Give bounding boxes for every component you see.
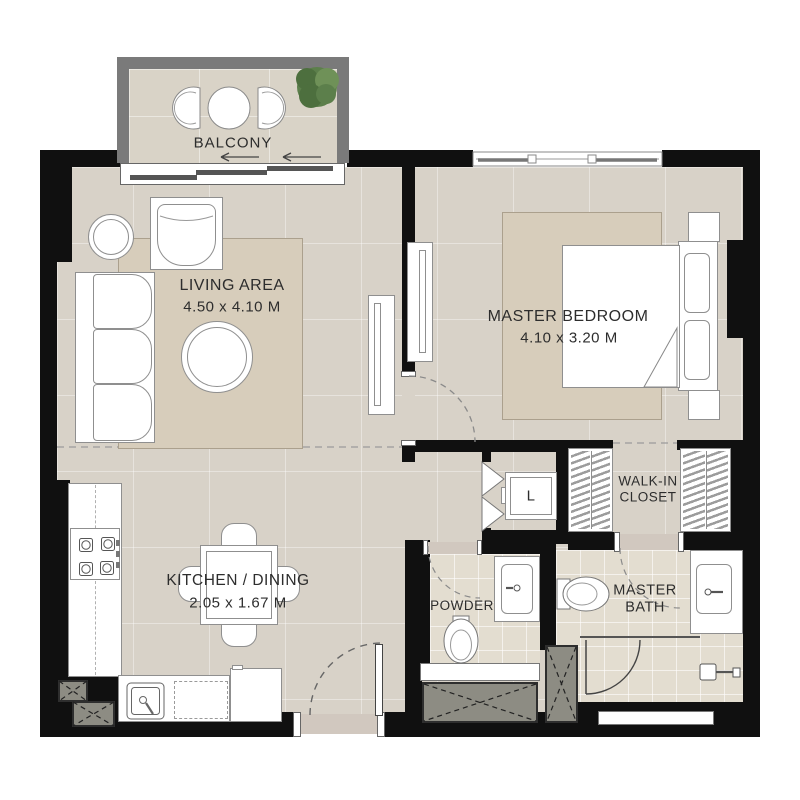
plant [296, 67, 339, 108]
bedroom-label: MASTER BEDROOM [488, 308, 649, 326]
sliding-direction-arrows [221, 153, 321, 161]
structure-dashed-lines [57, 443, 677, 447]
bedroom-door-arc [409, 376, 475, 442]
entry-door-arc [310, 643, 382, 715]
walkin-closet-label: WALK-IN CLOSET [618, 473, 677, 504]
detail-overlay [0, 0, 800, 800]
balcony-chair-left [173, 87, 200, 129]
bath-line1: MASTER [613, 582, 676, 599]
bed-blanket-fold [644, 328, 677, 387]
laundry-label: L [527, 487, 536, 504]
walkin-line1: WALK-IN [618, 473, 677, 489]
armchair-cushion-line [160, 216, 213, 221]
powder-door-arc [428, 546, 480, 598]
bedroom-window [473, 152, 662, 166]
bifold-door [482, 462, 504, 531]
balcony-label: BALCONY [194, 134, 273, 151]
powder-toilet [444, 616, 478, 663]
powder-label: POWDER [430, 598, 494, 614]
balcony-chair-right [258, 87, 285, 129]
kitchen-dims: 2.05 x 1.67 M [189, 594, 286, 611]
bath-line2: BATH [613, 599, 676, 616]
balcony-table [208, 87, 250, 129]
shower [580, 637, 700, 694]
floor-plan: BALCONY LIVING AREA 4.50 x 4.10 M MASTER… [0, 0, 800, 800]
bath-toilet [557, 577, 609, 611]
living-label: LIVING AREA [179, 277, 284, 295]
powder-faucet [506, 585, 520, 591]
bedroom-dims: 4.10 x 3.20 M [520, 329, 617, 346]
kitchen-sink [127, 683, 164, 719]
stove-burners [80, 538, 121, 576]
bath-faucet [705, 589, 723, 595]
living-dims: 4.50 x 4.10 M [183, 298, 280, 315]
kitchen-label: KITCHEN / DINING [166, 572, 309, 590]
master-bath-label: MASTER BATH [613, 582, 676, 615]
walkin-line2: CLOSET [618, 489, 677, 505]
shower-head [700, 664, 740, 680]
